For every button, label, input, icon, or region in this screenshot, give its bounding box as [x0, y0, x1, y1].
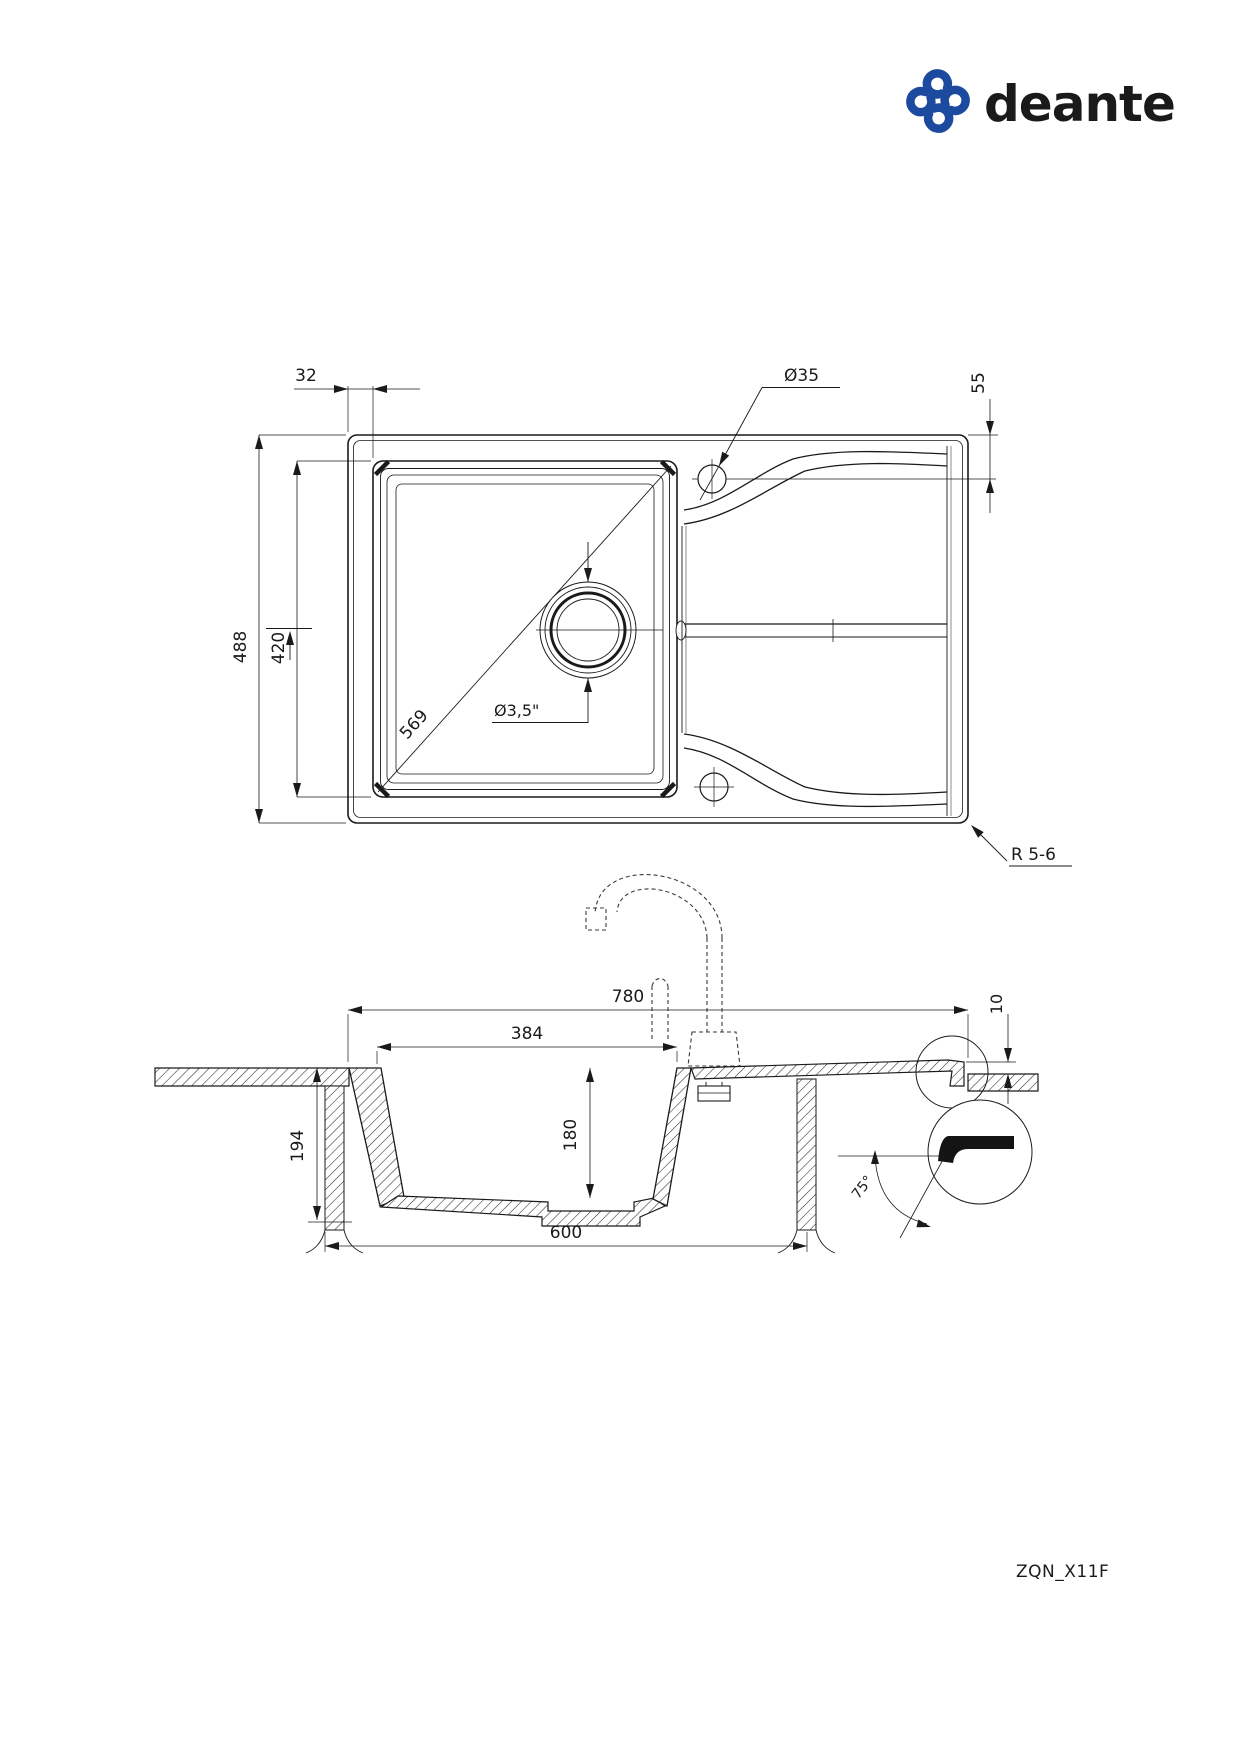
- cabinet-wall-right: [797, 1079, 816, 1230]
- faucet-mounting-nut: [698, 1086, 730, 1101]
- dim-corner-radius-label: R 5-6: [1011, 845, 1056, 865]
- dim-10-label: 10: [987, 994, 1006, 1014]
- drawing-code: ZQN_X11F: [1016, 1562, 1109, 1582]
- dim-600-label: 600: [550, 1223, 582, 1243]
- dim-780-label: 780: [612, 987, 644, 1007]
- cabinet-wall-left: [325, 1086, 344, 1230]
- dim-32-label: 32: [295, 366, 317, 386]
- technical-drawing: deante 569: [0, 0, 1240, 1754]
- datasheet-page: deante 569: [0, 0, 1240, 1754]
- countertop-right: [968, 1074, 1038, 1091]
- top-view: 569: [231, 366, 1072, 866]
- dim-55-label: 55: [969, 372, 989, 394]
- dim-384-label: 384: [511, 1024, 543, 1044]
- dim-194-label: 194: [288, 1130, 308, 1162]
- dim-tap-hole-diameter: Ø35: [784, 366, 819, 386]
- dim-drain-diameter: Ø3,5": [494, 701, 539, 720]
- dim-180-label: 180: [561, 1119, 581, 1151]
- brand-wordmark: deante: [984, 75, 1175, 133]
- countertop-left: [155, 1068, 349, 1086]
- page-background: [0, 0, 1240, 1754]
- dim-488-label: 488: [231, 631, 251, 663]
- dim-420-label: 420: [269, 632, 289, 664]
